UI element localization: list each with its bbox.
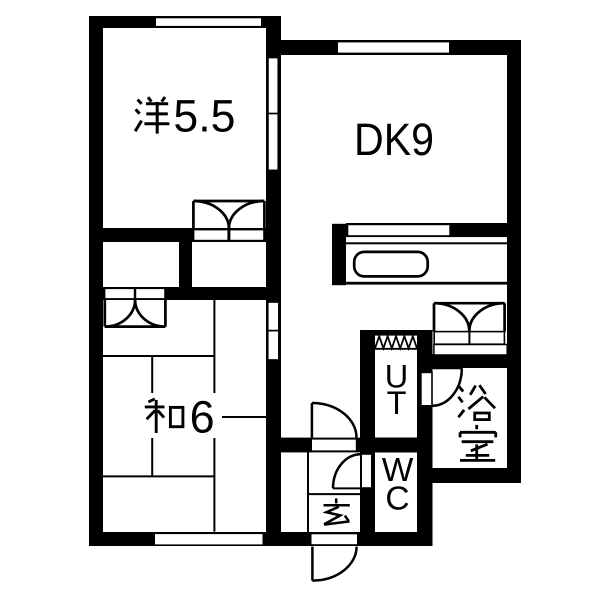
svg-text:6: 6 (190, 392, 215, 443)
svg-text:DK9: DK9 (354, 114, 434, 165)
svg-text:5.5: 5.5 (173, 90, 235, 141)
svg-text:T: T (387, 385, 407, 421)
svg-text:C: C (385, 481, 409, 518)
